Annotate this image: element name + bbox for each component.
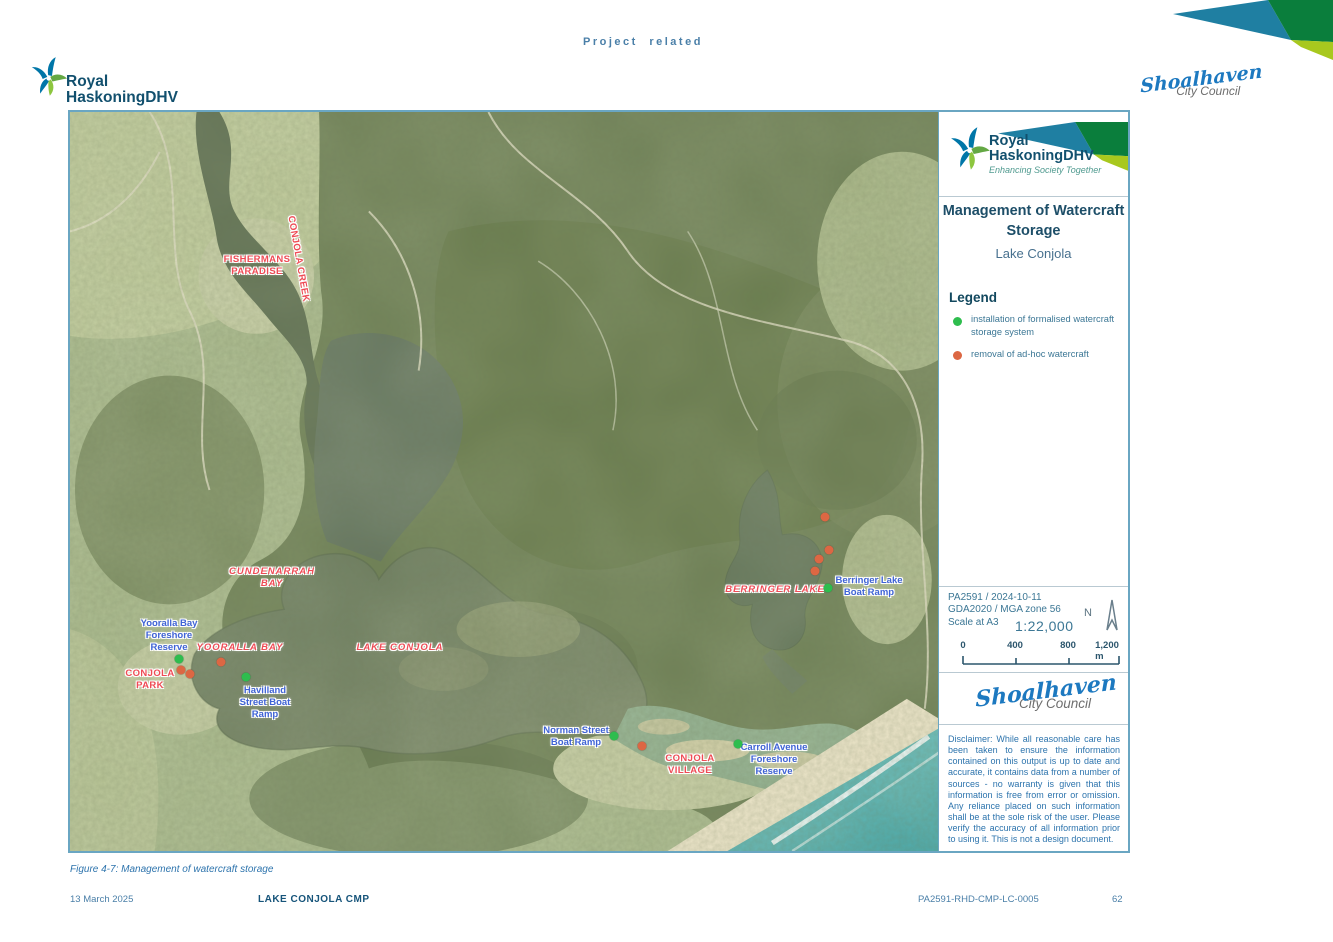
- marker-removal: [638, 742, 647, 751]
- place-label: CUNDENARRAH BAY: [229, 566, 315, 590]
- marker-installation: [824, 584, 833, 593]
- marker-removal: [825, 546, 834, 555]
- map-subtitle: Lake Conjola: [939, 246, 1128, 261]
- rhdhv-name-line2: HaskoningDHV: [989, 149, 1101, 164]
- scalebar-tick: 0: [960, 640, 965, 651]
- rhdhv-name-line1: Royal: [66, 74, 178, 90]
- panel-shoalhaven-logo: Shoalhaven City Council: [975, 680, 1117, 711]
- legend-item-removal: removal of ad-hoc watercraft: [971, 348, 1121, 361]
- map-figure: FISHERMANS PARADISECONJOLA CREEKCUNDENAR…: [68, 110, 1130, 853]
- marker-removal: [186, 670, 195, 679]
- panel-rhdhv-logo: Royal HaskoningDHV Enhancing Society Tog…: [947, 120, 1101, 176]
- marker-removal: [821, 513, 830, 522]
- footer-doc-number: PA2591-RHD-CMP-LC-0005: [918, 894, 1039, 905]
- footer-date: 13 March 2025: [70, 894, 133, 905]
- disclaimer-text: Disclaimer: While all reasonable care ha…: [948, 734, 1120, 846]
- place-label: CONJOLA PARK: [125, 668, 174, 692]
- marker-installation: [175, 655, 184, 664]
- scalebar-tick: 400: [1007, 640, 1023, 651]
- place-label: YOORALLA BAY: [197, 642, 284, 654]
- rhdhv-star-icon: [947, 120, 993, 176]
- rhdhv-logo: Royal HaskoningDHV: [28, 52, 178, 107]
- report-page: Project related Royal HaskoningDHV Shoal…: [0, 0, 1333, 942]
- scale-value: 1:22,000: [1015, 618, 1074, 634]
- footer-page-number: 62: [1112, 894, 1123, 905]
- marker-installation: [610, 732, 619, 741]
- marker-removal: [815, 555, 824, 564]
- project-number: PA2591 / 2024-10-11: [948, 592, 1042, 603]
- marker-removal: [177, 666, 186, 675]
- rhdhv-name-line2: HaskoningDHV: [66, 90, 178, 106]
- map-title: Management of Watercraft Storage: [939, 202, 1128, 241]
- legend-orange-marker-icon: [953, 351, 962, 360]
- scale-label: Scale at A3: [948, 617, 999, 628]
- marker-installation: [734, 740, 743, 749]
- page-header: Project related: [583, 36, 703, 48]
- place-label: FISHERMANS PARADISE: [224, 254, 291, 278]
- legend-item-installation: installation of formalised watercraft st…: [971, 313, 1121, 340]
- svg-text:N: N: [1084, 607, 1092, 619]
- facility-label: Norman Street Boat Ramp: [543, 725, 608, 749]
- scalebar-tick: 800: [1060, 640, 1076, 651]
- figure-caption: Figure 4-7: Management of watercraft sto…: [70, 864, 273, 875]
- place-label: LAKE CONJOLA: [357, 642, 444, 654]
- north-arrow-icon: N: [1082, 594, 1120, 638]
- rhdhv-name-line1: Royal: [989, 134, 1101, 149]
- legend-heading: Legend: [949, 290, 997, 305]
- datum-info: GDA2020 / MGA zone 56: [948, 604, 1061, 615]
- scale-bar: [961, 655, 1121, 665]
- facility-label: Carroll Avenue Foreshore Reserve: [741, 742, 808, 778]
- facility-label: Berringer Lake Boat Ramp: [835, 575, 902, 599]
- rhdhv-star-icon: [28, 52, 70, 100]
- facility-label: Havilland Street Boat Ramp: [240, 685, 291, 721]
- place-label: CONJOLA VILLAGE: [665, 753, 714, 777]
- place-label: BERRINGER LAKE: [725, 584, 825, 596]
- footer-doc-title: LAKE CONJOLA CMP: [258, 894, 370, 905]
- shoalhaven-logo: Shoalhaven City Council: [1140, 70, 1263, 97]
- marker-installation: [242, 673, 251, 682]
- map-title-panel: Royal HaskoningDHV Enhancing Society Tog…: [938, 112, 1128, 851]
- marker-removal: [217, 658, 226, 667]
- rhdhv-tagline: Enhancing Society Together: [989, 166, 1101, 175]
- marker-removal: [811, 567, 820, 576]
- legend-green-marker-icon: [953, 317, 962, 326]
- facility-label: Yooralla Bay Foreshore Reserve: [141, 618, 198, 654]
